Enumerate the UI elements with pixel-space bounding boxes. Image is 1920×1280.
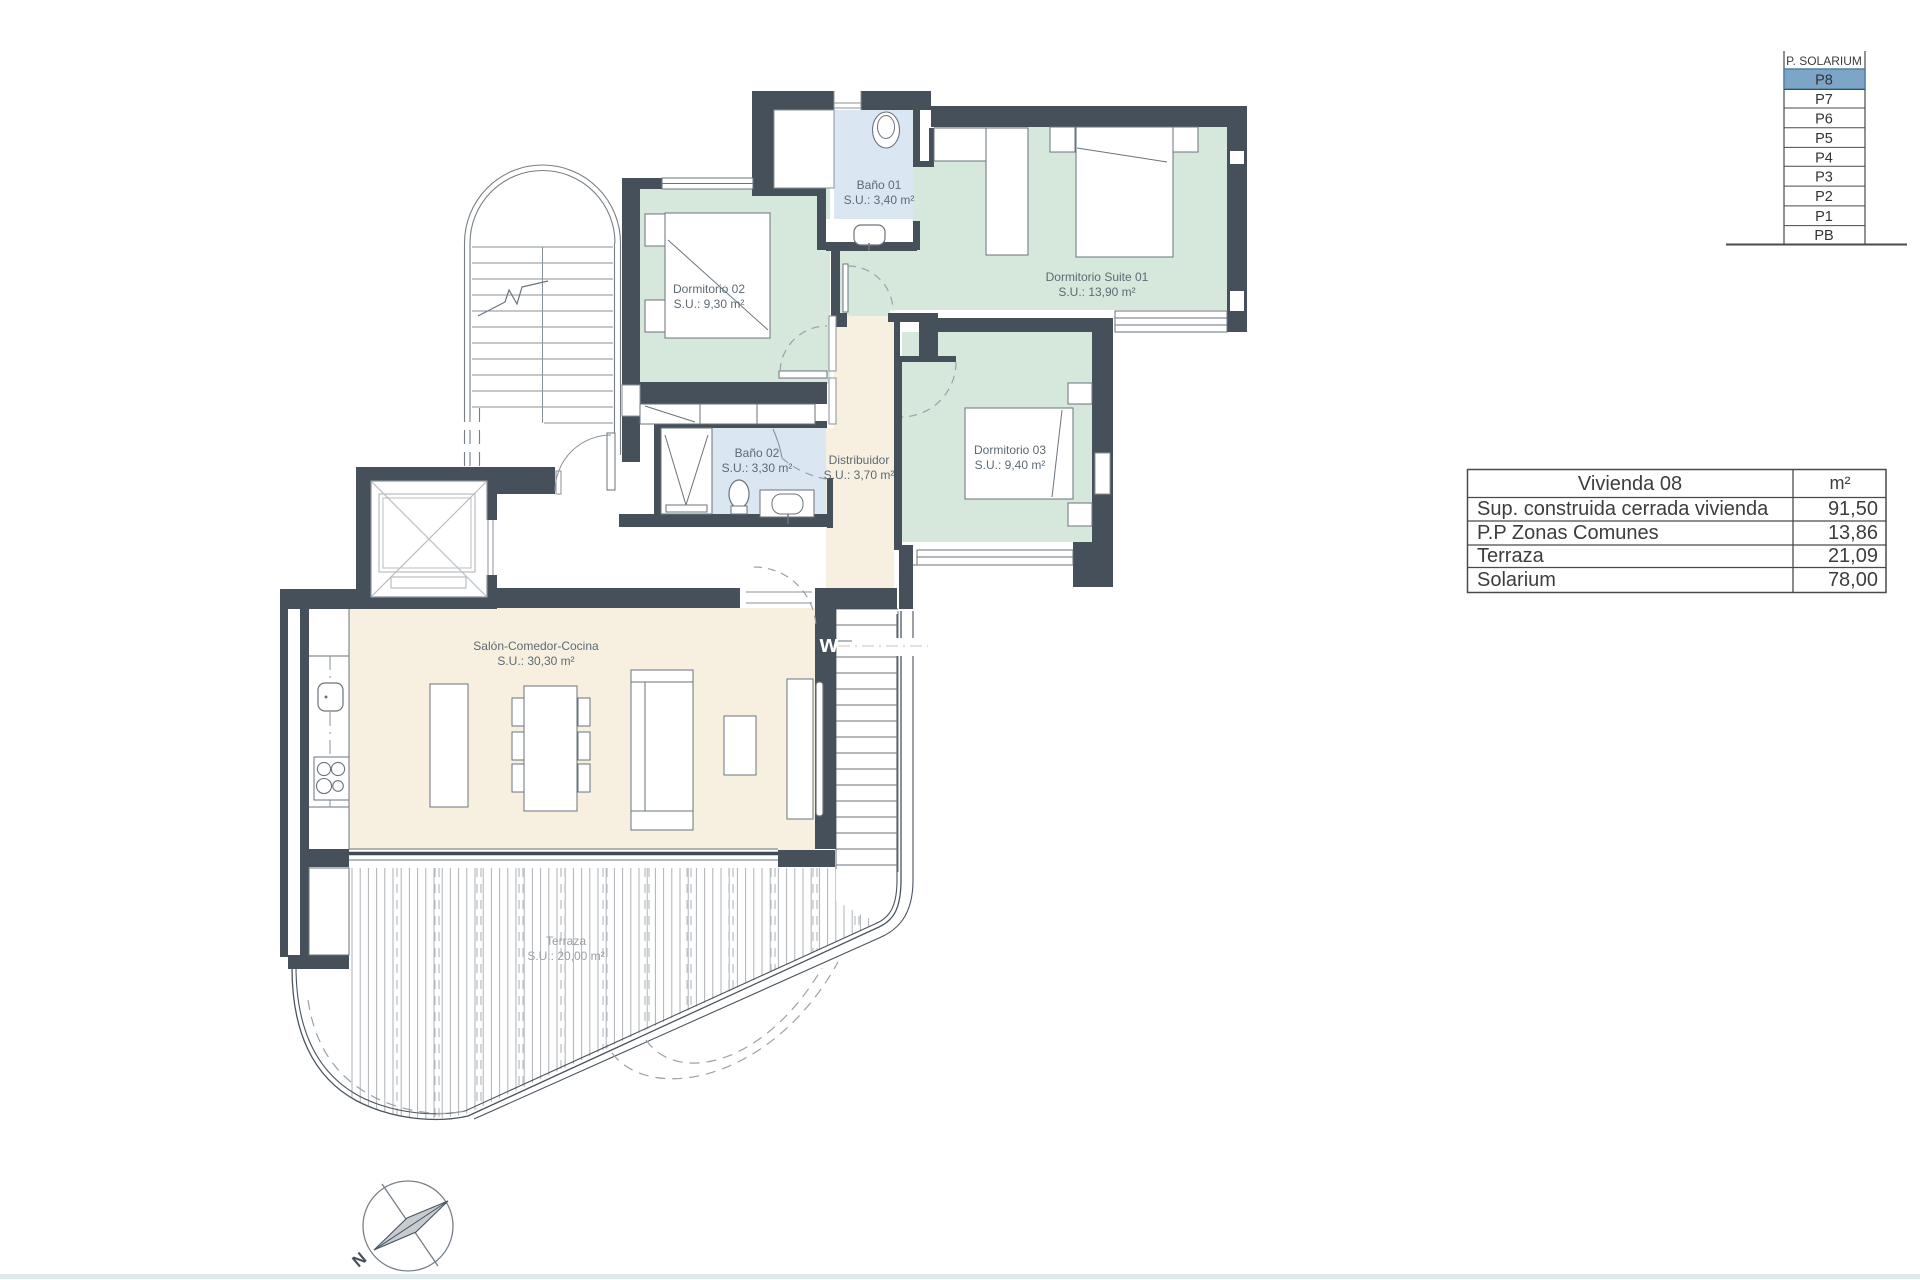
svg-text:S.U.: 3,40 m²: S.U.: 3,40 m² — [844, 193, 915, 207]
svg-text:S.U.: 3,30 m²: S.U.: 3,30 m² — [722, 461, 793, 475]
svg-text:P6: P6 — [1815, 112, 1833, 128]
svg-text:Baño 01: Baño 01 — [857, 178, 902, 192]
svg-text:P3: P3 — [1815, 170, 1833, 186]
svg-text:Vivienda 08: Vivienda 08 — [1578, 473, 1682, 495]
svg-text:P7: P7 — [1815, 92, 1833, 108]
svg-text:P8: P8 — [1815, 73, 1833, 89]
svg-text:P. SOLARIUM: P. SOLARIUM — [1786, 54, 1862, 68]
svg-text:Dormitorio 02: Dormitorio 02 — [673, 282, 745, 296]
svg-text:Solarium: Solarium — [1477, 569, 1556, 591]
svg-text:91,50: 91,50 — [1828, 498, 1878, 520]
svg-text:m²: m² — [1830, 473, 1851, 493]
svg-text:P5: P5 — [1815, 131, 1833, 147]
svg-text:S.U.: 9,40 m²: S.U.: 9,40 m² — [975, 458, 1046, 472]
svg-text:Dormitorio Suite 01: Dormitorio Suite 01 — [1046, 270, 1149, 284]
svg-text:P.P Zonas Comunes: P.P Zonas Comunes — [1477, 522, 1659, 544]
svg-text:P1: P1 — [1815, 209, 1833, 225]
svg-text:PB: PB — [1814, 228, 1833, 244]
svg-text:S.U.: 3,70 m²: S.U.: 3,70 m² — [824, 468, 895, 482]
svg-text:w: w — [819, 631, 839, 658]
svg-text:Baño 02: Baño 02 — [735, 446, 780, 460]
svg-text:S.U.: 30,30 m²: S.U.: 30,30 m² — [497, 654, 574, 668]
svg-text:21,09: 21,09 — [1828, 545, 1878, 567]
svg-text:Sup. construida cerrada vivien: Sup. construida cerrada vivienda — [1477, 498, 1769, 520]
svg-text:13,86: 13,86 — [1828, 522, 1878, 544]
svg-text:P4: P4 — [1815, 151, 1833, 167]
svg-text:Salón-Comedor-Cocina: Salón-Comedor-Cocina — [473, 639, 599, 653]
svg-text:78,00: 78,00 — [1828, 569, 1878, 591]
svg-text:Terraza: Terraza — [546, 934, 586, 948]
svg-text:Terraza: Terraza — [1477, 545, 1545, 567]
svg-text:P2: P2 — [1815, 189, 1833, 205]
svg-text:Dormitorio 03: Dormitorio 03 — [974, 443, 1046, 457]
svg-text:S.U.: 13,90 m²: S.U.: 13,90 m² — [1058, 285, 1135, 299]
svg-text:S.U.: 20,00 m²: S.U.: 20,00 m² — [527, 949, 604, 963]
svg-text:Distribuidor: Distribuidor — [829, 453, 890, 467]
svg-text:S.U.: 9,30 m²: S.U.: 9,30 m² — [674, 297, 745, 311]
